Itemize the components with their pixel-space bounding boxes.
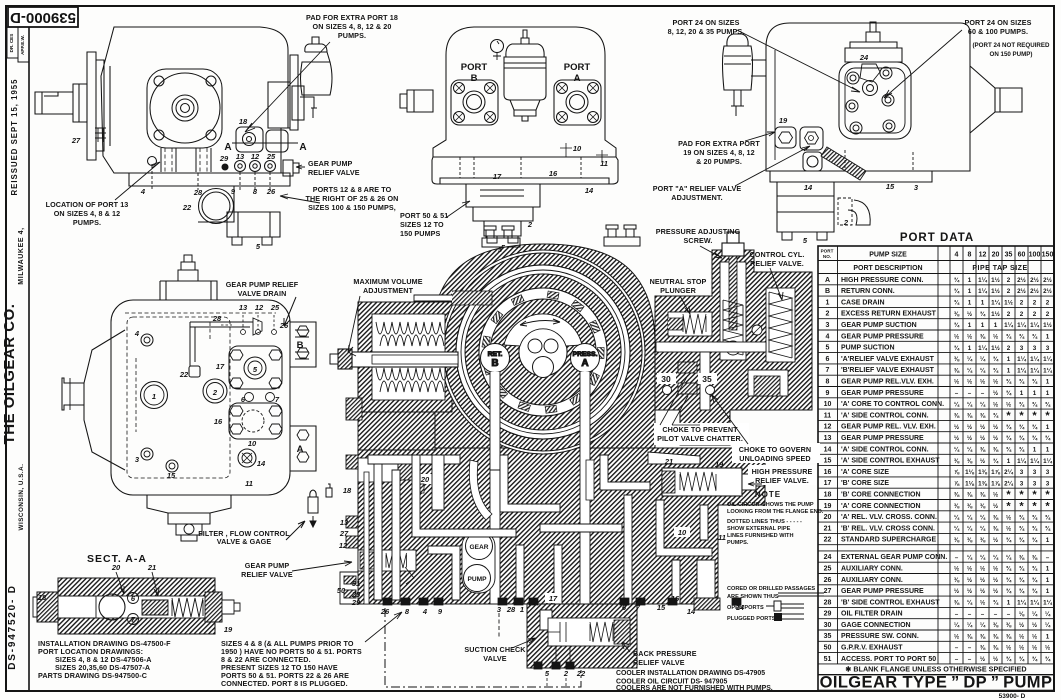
svg-text:COOLERS ARE NOT FURNISHED W: COOLERS ARE NOT FURNISHED WITH PUMPS. [616, 685, 773, 692]
svg-text:22: 22 [179, 370, 189, 379]
svg-text:21: 21 [147, 563, 156, 572]
svg-text:–: – [981, 611, 985, 618]
svg-text:2½: 2½ [1030, 287, 1039, 295]
svg-text:¼: ¼ [954, 446, 960, 454]
svg-text:½: ½ [993, 434, 998, 442]
svg-text:¾: ¾ [993, 457, 999, 465]
svg-text:1: 1 [981, 322, 985, 329]
svg-text:SIZES 100 & 150 PUMPS,: SIZES 100 & 150 PUMPS, [308, 203, 396, 212]
svg-text:27: 27 [339, 529, 349, 538]
svg-text:25: 25 [824, 566, 832, 573]
svg-text:SIZES 12 TO: SIZES 12 TO [400, 220, 444, 229]
svg-text:½: ½ [980, 565, 985, 573]
svg-text:⅜: ⅜ [967, 492, 973, 499]
svg-text:GEAR PUMP: GEAR PUMP [308, 159, 353, 168]
svg-text:1: 1 [1033, 447, 1037, 454]
svg-text:¾: ¾ [1019, 525, 1025, 533]
svg-text:¼: ¼ [1006, 553, 1012, 561]
svg-text:GEAR PUMP RELIEF: GEAR PUMP RELIEF [226, 280, 299, 289]
svg-text:14: 14 [824, 446, 832, 453]
svg-text:1¼: 1¼ [1017, 457, 1027, 465]
svg-text:½: ½ [1019, 632, 1024, 640]
svg-text:⅜: ⅜ [980, 413, 986, 420]
svg-text:RET.: RET. [488, 351, 503, 358]
svg-text:⅜: ⅜ [980, 447, 986, 454]
svg-text:1⅛: 1⅛ [965, 469, 975, 476]
svg-text:½: ½ [993, 378, 998, 386]
svg-text:*: * [1006, 489, 1011, 501]
svg-text:1: 1 [1007, 600, 1011, 607]
svg-text:GEAR PUMP SUCTION: GEAR PUMP SUCTION [841, 322, 917, 329]
svg-text:'A' SIDE CONTROL CONN.: 'A' SIDE CONTROL CONN. [841, 446, 929, 453]
svg-text:VALVE: VALVE [483, 654, 507, 663]
svg-text:53900- D: 53900- D [999, 693, 1026, 700]
svg-text:3: 3 [1020, 345, 1024, 352]
svg-text:⅜: ⅜ [993, 526, 999, 533]
svg-text:2: 2 [1007, 345, 1011, 352]
svg-text:OPEN PORTS: OPEN PORTS [727, 605, 764, 611]
svg-text:25: 25 [266, 152, 276, 161]
svg-text:A: A [224, 142, 231, 153]
svg-text:⅜: ⅜ [993, 633, 999, 640]
svg-text:RELIEF VALVE: RELIEF VALVE [241, 570, 293, 579]
svg-text:½: ½ [1032, 621, 1037, 629]
svg-text:½: ½ [1006, 400, 1011, 408]
svg-text:4: 4 [134, 329, 140, 338]
svg-text:¾: ¾ [1032, 333, 1038, 341]
svg-text:18: 18 [38, 593, 47, 602]
svg-text:RELIEF VALVE: RELIEF VALVE [633, 658, 685, 667]
svg-text:¾: ¾ [1032, 536, 1038, 544]
svg-text:½: ½ [993, 400, 998, 408]
svg-text:ARE SHOWN THUS: ARE SHOWN THUS [727, 594, 779, 600]
svg-text:1¼: 1¼ [1043, 355, 1053, 363]
svg-text:2½: 2½ [1030, 276, 1039, 284]
svg-text:½: ½ [980, 457, 985, 465]
svg-text:PLUNGER: PLUNGER [660, 286, 697, 295]
svg-text:1: 1 [1046, 633, 1050, 640]
svg-text:29: 29 [351, 598, 361, 607]
svg-text:1: 1 [826, 299, 830, 306]
svg-text:35: 35 [824, 633, 832, 640]
svg-text:½: ½ [967, 310, 972, 318]
svg-text:1⅞: 1⅞ [991, 469, 1001, 476]
svg-text:1¼: 1¼ [1030, 355, 1040, 363]
svg-text:¾: ¾ [1006, 446, 1012, 454]
svg-text:¾: ¾ [1019, 434, 1025, 442]
svg-text:CONNECTED. PORT 8 IS PLUGG: CONNECTED. PORT 8 IS PLUGGED. [221, 679, 348, 688]
svg-text:¼: ¼ [980, 621, 986, 629]
svg-text:¾: ¾ [1045, 655, 1051, 663]
svg-text:DS-947520- D: DS-947520- D [7, 584, 18, 670]
svg-text:–: – [968, 656, 972, 663]
svg-text:18: 18 [343, 486, 352, 495]
svg-text:'A' CORE TO CONTROL CONN.: 'A' CORE TO CONTROL CONN. [841, 401, 944, 408]
svg-text:1¼: 1¼ [978, 344, 988, 352]
svg-text:½: ½ [993, 576, 998, 584]
svg-text:14: 14 [687, 607, 696, 616]
svg-text:¼: ¼ [980, 553, 986, 561]
svg-text:21: 21 [664, 457, 673, 466]
svg-text:½: ½ [980, 378, 985, 386]
svg-text:PUMP SUCTION: PUMP SUCTION [841, 345, 895, 352]
svg-text:NEUTRAL STOP: NEUTRAL STOP [650, 277, 707, 286]
svg-text:1: 1 [968, 288, 972, 295]
svg-text:*: * [1006, 410, 1011, 422]
svg-text:EXCESS RETURN EXHAUST: EXCESS RETURN EXHAUST [841, 311, 937, 318]
svg-text:35: 35 [702, 374, 712, 384]
svg-text:⅜: ⅜ [980, 492, 986, 499]
svg-text:1⅞: 1⅞ [991, 480, 1001, 487]
svg-text:18: 18 [824, 492, 832, 499]
svg-text:PUMPS.: PUMPS. [338, 31, 366, 40]
svg-text:¾: ¾ [1006, 655, 1012, 663]
svg-text:1: 1 [1046, 537, 1050, 544]
svg-text:½: ½ [954, 434, 959, 442]
svg-text:2: 2 [1020, 311, 1024, 318]
svg-text:⅜: ⅜ [993, 447, 999, 454]
svg-text:1: 1 [1007, 356, 1011, 363]
svg-text:'A' CORE SIZE: 'A' CORE SIZE [841, 469, 889, 476]
svg-text:–: – [1046, 554, 1050, 561]
svg-text:¾: ¾ [1006, 565, 1012, 573]
svg-text:LOOKING FROM THE FLANGE END.: LOOKING FROM THE FLANGE END. [727, 509, 824, 515]
svg-text:1: 1 [1046, 390, 1050, 397]
svg-text:1: 1 [994, 322, 998, 329]
svg-text:½: ½ [1019, 621, 1024, 629]
svg-text:*: * [1019, 500, 1024, 512]
svg-text:PRESSURE ADJUSTING: PRESSURE ADJUSTING [656, 227, 741, 236]
svg-text:1: 1 [520, 605, 524, 614]
svg-text:150: 150 [1042, 252, 1054, 259]
svg-text:DOTTED LINES THUS - - - - -: DOTTED LINES THUS - - - - - [727, 519, 802, 525]
svg-text:2¼: 2¼ [1004, 479, 1014, 487]
svg-text:⅜: ⅜ [954, 458, 960, 465]
svg-text:2: 2 [527, 220, 533, 229]
svg-text:(PORT 24 NOT REQUIRED: (PORT 24 NOT REQUIRED [972, 42, 1050, 49]
svg-text:⅜: ⅜ [954, 367, 960, 374]
svg-text:20: 20 [420, 475, 430, 484]
svg-text:½: ½ [980, 587, 985, 595]
svg-text:14: 14 [804, 183, 813, 192]
svg-text:16: 16 [671, 594, 680, 603]
svg-text:¼: ¼ [980, 513, 986, 521]
svg-text:51: 51 [824, 656, 832, 663]
svg-text:⅜: ⅜ [980, 645, 986, 652]
svg-text:17: 17 [216, 362, 225, 371]
svg-text:1: 1 [1046, 566, 1050, 573]
svg-text:19: 19 [715, 460, 724, 469]
svg-text:16: 16 [214, 417, 223, 426]
svg-text:1¼: 1¼ [1030, 321, 1040, 329]
svg-text:1⅜: 1⅜ [978, 480, 988, 487]
svg-text:22: 22 [576, 669, 586, 678]
svg-text:29: 29 [219, 154, 229, 163]
svg-text:⅜: ⅜ [1032, 554, 1038, 561]
svg-text:1: 1 [1046, 447, 1050, 454]
svg-text:B: B [825, 288, 830, 295]
svg-text:1¼: 1¼ [1017, 599, 1027, 607]
svg-text:10: 10 [573, 144, 582, 153]
svg-text:G.P.R.V. EXHAUST: G.P.R.V. EXHAUST [841, 645, 903, 652]
svg-text:30: 30 [824, 622, 832, 629]
svg-text:½: ½ [980, 655, 985, 663]
svg-text:*: * [1019, 489, 1024, 501]
svg-text:APP.E.W.: APP.E.W. [20, 35, 25, 55]
svg-text:¾: ¾ [1006, 536, 1012, 544]
svg-text:⅜: ⅜ [1006, 633, 1012, 640]
svg-text:22: 22 [824, 537, 832, 544]
svg-text:PORT 24 ON SIZES: PORT 24 ON SIZES [964, 18, 1031, 27]
svg-text:¾: ¾ [1045, 400, 1051, 408]
svg-text:–: – [955, 611, 959, 618]
svg-text:¾: ¾ [993, 355, 999, 363]
svg-text:4: 4 [955, 252, 959, 259]
svg-text:*: * [1032, 500, 1037, 512]
svg-text:2½: 2½ [1017, 287, 1026, 295]
svg-text:¾: ¾ [1032, 576, 1038, 584]
svg-text:1¼: 1¼ [1043, 366, 1053, 374]
svg-text:1½: 1½ [991, 276, 1000, 284]
svg-text:20: 20 [111, 563, 121, 572]
svg-text:28: 28 [506, 605, 516, 614]
svg-text:OIL FILTER DRAIN: OIL FILTER DRAIN [841, 611, 903, 618]
svg-text:1: 1 [981, 300, 985, 307]
svg-text:ON SIZES 4, 8, 12 & 20: ON SIZES 4, 8, 12 & 20 [313, 22, 392, 31]
svg-text:½: ½ [967, 423, 972, 431]
svg-text:1¼: 1¼ [1030, 599, 1040, 607]
svg-text:LINES FURNISHED WITH: LINES FURNISHED WITH [727, 533, 794, 539]
svg-text:'B' REL. VLV. CROSS CONN.: 'B' REL. VLV. CROSS CONN. [841, 525, 935, 532]
svg-text:1½: 1½ [991, 287, 1000, 295]
svg-text:¾: ¾ [1006, 389, 1012, 397]
svg-text:19: 19 [779, 116, 788, 125]
svg-text:13: 13 [824, 435, 832, 442]
svg-text:12: 12 [824, 424, 832, 431]
svg-text:1¼: 1¼ [1017, 321, 1027, 329]
svg-text:3: 3 [826, 322, 830, 329]
svg-text:8: 8 [968, 252, 972, 259]
svg-text:& 20 PUMPS.: & 20 PUMPS. [696, 157, 742, 166]
svg-text:¾: ¾ [1006, 333, 1012, 341]
svg-text:¾: ¾ [954, 321, 960, 329]
svg-text:2: 2 [1007, 277, 1011, 284]
svg-text:½: ½ [967, 434, 972, 442]
svg-text:GEAR PUMP REL.VLV. EXH.: GEAR PUMP REL.VLV. EXH. [841, 379, 934, 386]
svg-text:¾: ¾ [1032, 400, 1038, 408]
svg-text:8: 8 [826, 379, 830, 386]
svg-text:3: 3 [1020, 480, 1024, 487]
svg-text:¾: ¾ [1019, 378, 1025, 386]
svg-text:18: 18 [239, 117, 248, 126]
svg-text:½: ½ [993, 502, 998, 510]
svg-text:2: 2 [1046, 311, 1050, 318]
svg-text:1: 1 [1046, 379, 1050, 386]
svg-text:⅜: ⅜ [1006, 622, 1012, 629]
svg-text:1: 1 [152, 392, 156, 401]
svg-text:15: 15 [167, 471, 176, 480]
svg-text:20: 20 [824, 514, 832, 521]
svg-text:14: 14 [585, 186, 594, 195]
svg-text:13: 13 [239, 303, 248, 312]
svg-text:PAD FOR EXTRA PORT 18: PAD FOR EXTRA PORT 18 [306, 13, 398, 22]
svg-text:2: 2 [1033, 300, 1037, 307]
svg-text:½: ½ [967, 587, 972, 595]
svg-text:3: 3 [1020, 469, 1024, 476]
svg-text:*: * [1032, 410, 1037, 422]
svg-text:¼: ¼ [967, 525, 973, 533]
svg-text:⅜: ⅜ [954, 537, 960, 544]
svg-text:29: 29 [824, 611, 832, 618]
svg-text:NO.: NO. [823, 254, 831, 259]
svg-text:¼: ¼ [954, 621, 960, 629]
svg-text:PILOT VALVE CHATTER.: PILOT VALVE CHATTER. [657, 434, 743, 443]
svg-text:¾: ¾ [1019, 655, 1025, 663]
svg-text:A: A [825, 277, 830, 284]
svg-text:25: 25 [270, 303, 280, 312]
svg-text:27: 27 [824, 588, 832, 595]
svg-text:THE RIGHT OF 25 & 26 ON: THE RIGHT OF 25 & 26 ON [306, 194, 399, 203]
svg-text:1¼: 1¼ [1004, 321, 1014, 329]
svg-text:⅜: ⅜ [954, 577, 960, 584]
svg-text:3: 3 [1033, 480, 1037, 487]
svg-text:2½: 2½ [1043, 276, 1052, 284]
svg-text:1: 1 [1033, 390, 1037, 397]
svg-text:⅜: ⅜ [967, 503, 973, 510]
svg-text:½: ½ [1006, 513, 1011, 521]
svg-text:⅜: ⅜ [967, 413, 973, 420]
svg-text:¾: ¾ [993, 412, 999, 420]
svg-text:150 PUMPS: 150 PUMPS [400, 229, 441, 238]
svg-text:¾: ¾ [1045, 434, 1051, 442]
svg-text:¾: ¾ [1032, 434, 1038, 442]
svg-text:¾: ¾ [1019, 423, 1025, 431]
svg-text:ACCESS. PORT TO PORT 50: ACCESS. PORT TO PORT 50 [841, 656, 936, 663]
svg-text:⅞: ⅞ [954, 469, 960, 476]
svg-text:2: 2 [212, 388, 218, 397]
svg-text:½: ½ [967, 576, 972, 584]
svg-text:26: 26 [824, 577, 832, 584]
svg-text:–: – [1007, 611, 1011, 618]
svg-text:¼: ¼ [993, 553, 999, 561]
svg-text:3: 3 [1033, 469, 1037, 476]
svg-text:8, 12, 20 & 35 PUMPS.: 8, 12, 20 & 35 PUMPS. [668, 27, 745, 36]
svg-text:REISSUED SEPT 15, 1955: REISSUED SEPT 15, 1955 [10, 79, 19, 196]
svg-text:11: 11 [718, 533, 726, 542]
svg-text:PORTS 12 & 8 ARE TO: PORTS 12 & 8 ARE TO [313, 185, 392, 194]
svg-text:¾: ¾ [1032, 565, 1038, 573]
svg-text:WISCONSIN, U.S.A.: WISCONSIN, U.S.A. [18, 464, 25, 531]
svg-text:ADJUSTMENT.: ADJUSTMENT. [671, 193, 722, 202]
svg-text:½: ½ [1032, 644, 1037, 652]
svg-text:–: – [955, 390, 959, 397]
svg-text:STANDARD SUPERCHARGE: STANDARD SUPERCHARGE [841, 537, 936, 544]
svg-text:–: – [968, 390, 972, 397]
svg-text:A: A [297, 444, 304, 455]
svg-text:19 ON SIZES 4, 8, 12: 19 ON SIZES 4, 8, 12 [683, 148, 755, 157]
svg-text:¼: ¼ [980, 355, 986, 363]
svg-text:–: – [981, 390, 985, 397]
svg-text:⅜: ⅜ [954, 492, 960, 499]
svg-text:ON 150 PUMP): ON 150 PUMP) [990, 51, 1033, 58]
svg-text:27: 27 [71, 136, 81, 145]
svg-text:15: 15 [824, 458, 832, 465]
svg-text:¼: ¼ [967, 621, 973, 629]
svg-text:½: ½ [993, 423, 998, 431]
svg-text:GEAR PUMP: GEAR PUMP [245, 561, 290, 570]
svg-text:½: ½ [993, 536, 998, 544]
svg-text:*: * [1045, 410, 1050, 422]
svg-text:PORT DESCRIPTION: PORT DESCRIPTION [853, 265, 922, 272]
svg-text:–: – [968, 645, 972, 652]
svg-text:SHOW EXTERNAL PIPE: SHOW EXTERNAL PIPE [727, 526, 791, 532]
svg-text:17: 17 [493, 172, 502, 181]
svg-text:½: ½ [954, 632, 959, 640]
svg-text:PORT DATA: PORT DATA [900, 232, 974, 244]
svg-text:✱ BLANK FLANGE UNLESS OTHERWIS: ✱ BLANK FLANGE UNLESS OTHERWISE SPECIFIE… [845, 665, 1026, 674]
svg-text:¾: ¾ [1019, 587, 1025, 595]
svg-text:10: 10 [248, 439, 257, 448]
svg-text:GEAR PUMP PRESSURE: GEAR PUMP PRESSURE [841, 390, 924, 397]
svg-text:1: 1 [1046, 424, 1050, 431]
svg-text:19: 19 [824, 503, 832, 510]
svg-text:¼: ¼ [1045, 610, 1051, 618]
svg-text:11: 11 [245, 479, 253, 488]
svg-text:1: 1 [1020, 390, 1024, 397]
svg-text:1½: 1½ [1004, 299, 1013, 307]
svg-text:VALVE & GAGE: VALVE & GAGE [217, 537, 272, 546]
svg-text:12: 12 [251, 152, 260, 161]
svg-text:¼: ¼ [980, 366, 986, 374]
svg-text:⅜: ⅜ [980, 537, 986, 544]
svg-text:¼: ¼ [954, 513, 960, 521]
svg-text:¾: ¾ [1032, 655, 1038, 663]
svg-text:3: 3 [1046, 345, 1050, 352]
svg-text:1¼: 1¼ [978, 276, 988, 284]
svg-text:¾: ¾ [1032, 513, 1038, 521]
svg-text:OILGEAR TYPE ” DP ” PUMP: OILGEAR TYPE ” DP ” PUMP [820, 674, 1053, 692]
svg-text:⅜: ⅜ [1019, 554, 1025, 561]
svg-text:B: B [491, 358, 498, 369]
svg-text:'B' SIDE CONTROL EXHAUST: 'B' SIDE CONTROL EXHAUST [841, 599, 940, 606]
svg-text:¾: ¾ [1006, 423, 1012, 431]
svg-text:⅜: ⅜ [993, 514, 999, 521]
svg-text:21: 21 [824, 525, 832, 532]
svg-text:¾: ¾ [954, 299, 960, 307]
svg-text:⅜: ⅜ [980, 633, 986, 640]
svg-text:51: 51 [352, 579, 360, 588]
svg-text:¾: ¾ [1045, 525, 1051, 533]
svg-text:2: 2 [1020, 300, 1024, 307]
svg-text:13: 13 [236, 152, 245, 161]
svg-text:⅜: ⅜ [954, 356, 960, 363]
svg-text:1¼: 1¼ [1030, 366, 1040, 374]
svg-text:PRESS.: PRESS. [573, 351, 598, 358]
svg-text:½: ½ [993, 389, 998, 397]
svg-text:EXTERNAL GEAR PUMP CONN.: EXTERNAL GEAR PUMP CONN. [841, 554, 947, 561]
svg-text:*: * [1032, 489, 1037, 501]
svg-text:⅜: ⅜ [954, 311, 960, 318]
svg-text:100: 100 [1029, 252, 1041, 259]
svg-text:¾: ¾ [1045, 513, 1051, 521]
svg-text:GEAR PUMP REL. VLV. EXH.: GEAR PUMP REL. VLV. EXH. [841, 424, 936, 431]
svg-text:1¼: 1¼ [978, 287, 988, 295]
svg-text:–: – [955, 656, 959, 663]
svg-text:PORT: PORT [821, 249, 834, 254]
svg-text:¾: ¾ [954, 287, 960, 295]
svg-text:28: 28 [824, 599, 832, 606]
svg-text:½: ½ [980, 434, 985, 442]
